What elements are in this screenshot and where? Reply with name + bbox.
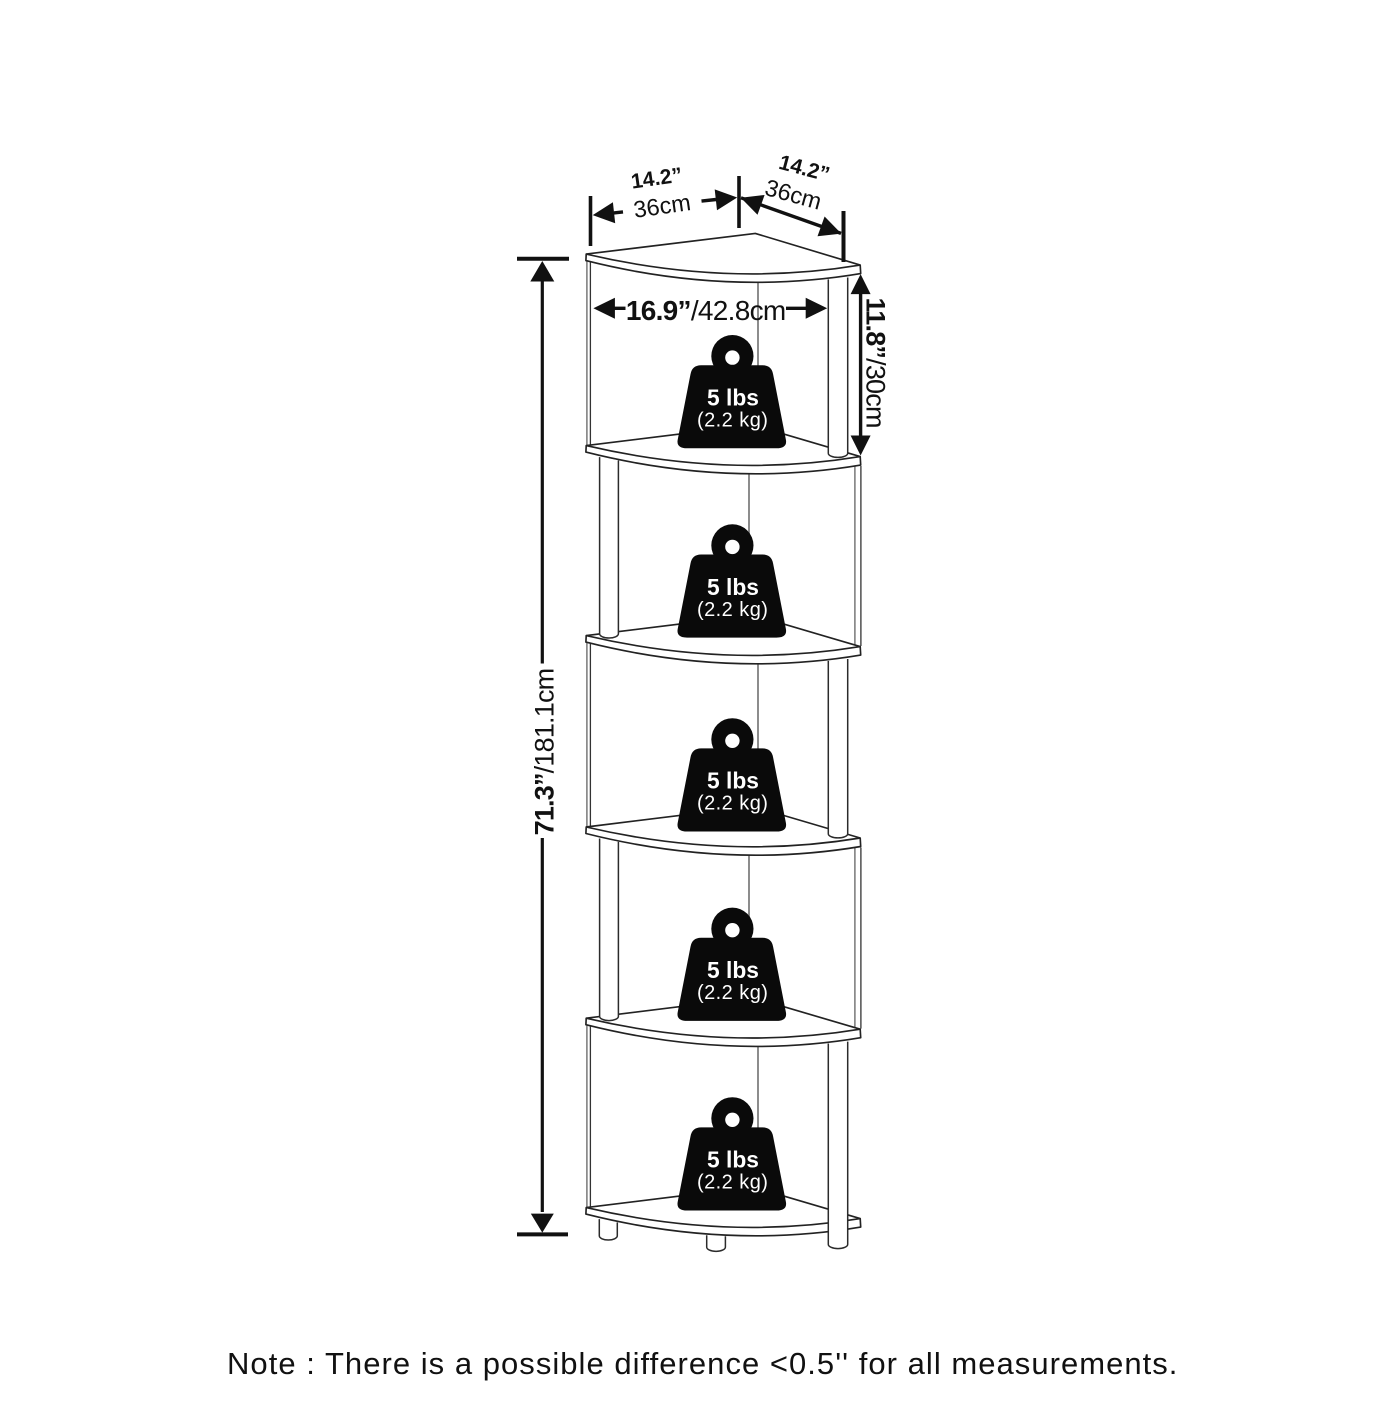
svg-text:71.3”/181.1cm: 71.3”/181.1cm xyxy=(530,669,560,836)
svg-text:11.8”/30cm: 11.8”/30cm xyxy=(861,298,891,428)
svg-text:Note : There is a possible dif: Note : There is a possible difference <0… xyxy=(227,1346,1178,1381)
svg-text:16.9”/42.8cm: 16.9”/42.8cm xyxy=(626,295,786,326)
